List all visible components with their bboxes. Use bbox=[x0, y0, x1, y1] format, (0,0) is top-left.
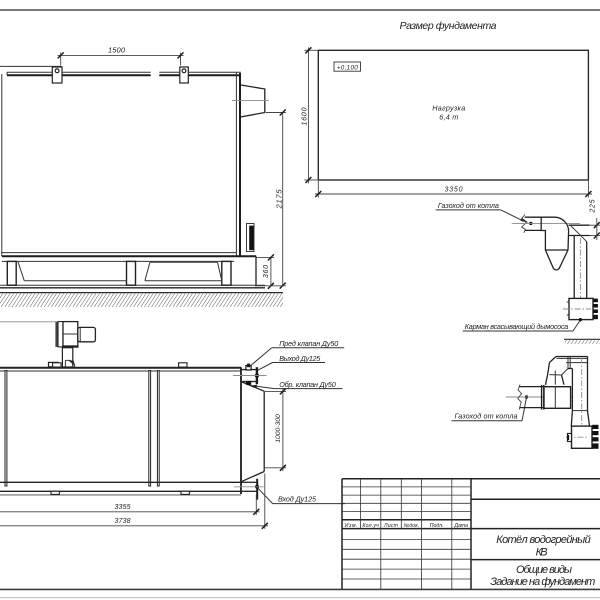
svg-text:Изм.: Изм. bbox=[345, 523, 358, 529]
svg-text:3738: 3738 bbox=[115, 518, 131, 525]
svg-text:Обр. клапан Ду50: Обр. клапан Ду50 bbox=[279, 380, 336, 389]
svg-text:Котёл водогрейный: Котёл водогрейный bbox=[496, 534, 591, 546]
svg-text:225: 225 bbox=[589, 199, 596, 213]
svg-text:2175: 2175 bbox=[274, 189, 283, 210]
svg-text:Нагрузка: Нагрузка bbox=[432, 104, 465, 113]
svg-text:6,4 т: 6,4 т bbox=[439, 113, 458, 122]
svg-text:Подп.: Подп. bbox=[430, 523, 444, 529]
svg-text:Пред клапан Ду50: Пред клапан Ду50 bbox=[279, 339, 338, 348]
svg-text:Газоход от котла: Газоход от котла bbox=[438, 201, 499, 210]
svg-text:Карман всасывающий дымососа: Карман всасывающий дымососа bbox=[465, 322, 569, 331]
svg-text:№док.: №док. bbox=[404, 523, 420, 529]
svg-text:Вход Ду125: Вход Ду125 bbox=[278, 494, 317, 503]
svg-text:Размер фундамента: Размер фундамента bbox=[400, 20, 497, 32]
svg-text:1600: 1600 bbox=[301, 107, 308, 125]
svg-text:Лист: Лист bbox=[383, 523, 399, 529]
svg-text:3350: 3350 bbox=[445, 186, 463, 193]
svg-text:1000-300: 1000-300 bbox=[275, 414, 282, 443]
svg-text:3355: 3355 bbox=[115, 504, 131, 511]
svg-text:Общие виды: Общие виды bbox=[516, 564, 572, 576]
svg-text:Кол.уч: Кол.уч bbox=[362, 523, 379, 529]
svg-text:КВ: КВ bbox=[536, 547, 548, 559]
svg-text:Газоход от котла: Газоход от котла bbox=[455, 412, 518, 421]
svg-text:1500: 1500 bbox=[108, 45, 126, 54]
svg-text:Задание на фундамент: Задание на фундамент bbox=[490, 576, 595, 588]
svg-text:+0,100: +0,100 bbox=[337, 64, 358, 71]
svg-text:Выход Ду125: Выход Ду125 bbox=[279, 354, 321, 363]
svg-text:360: 360 bbox=[263, 265, 270, 278]
svg-text:Дата: Дата bbox=[453, 523, 468, 529]
